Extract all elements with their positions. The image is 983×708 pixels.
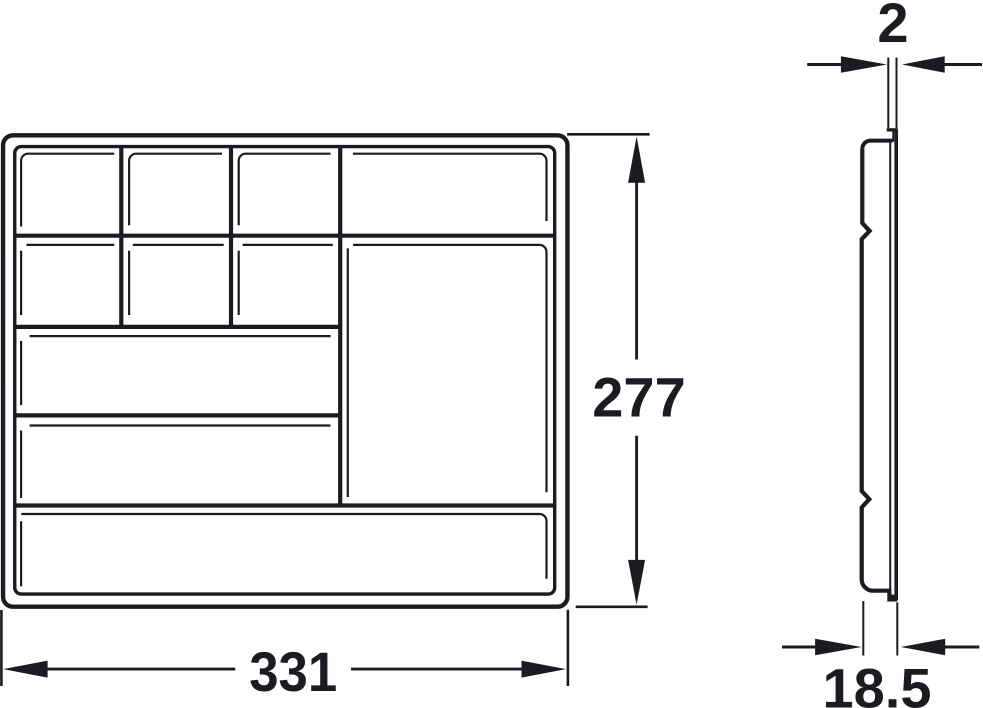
- svg-text:277: 277: [592, 365, 685, 428]
- svg-text:18.5: 18.5: [823, 656, 932, 708]
- svg-text:2: 2: [877, 0, 908, 54]
- svg-text:331: 331: [249, 640, 337, 703]
